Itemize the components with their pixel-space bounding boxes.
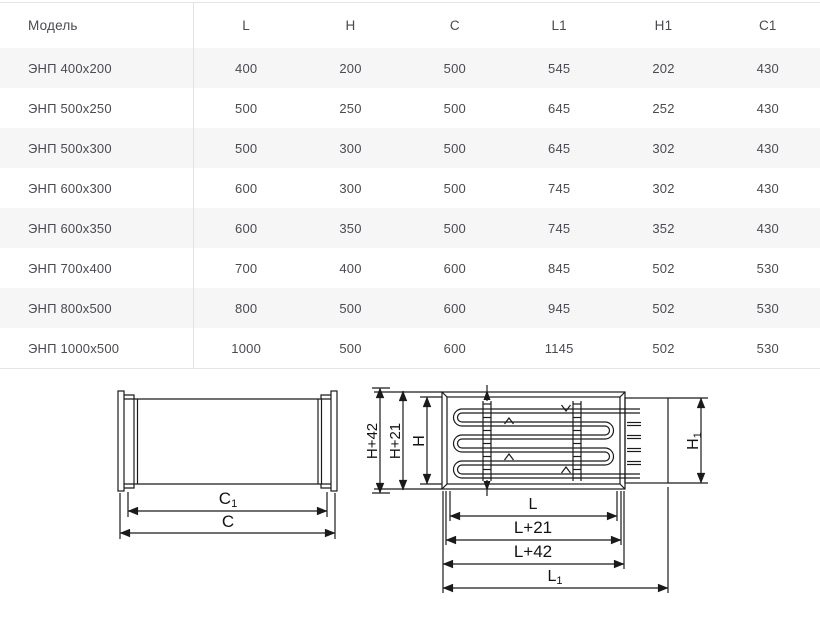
value-cell: 845 <box>507 248 611 288</box>
terminal-box <box>625 398 668 483</box>
value-cell: 500 <box>298 288 402 328</box>
value-cell: 430 <box>716 168 820 208</box>
value-cell: 600 <box>403 328 507 368</box>
dimension-label-h42: H+42 <box>364 423 381 459</box>
model-cell: ЭНП 600х350 <box>0 208 194 248</box>
column-header: H <box>298 3 402 48</box>
value-cell: 250 <box>298 88 402 128</box>
table-row: ЭНП 1000х50010005006001145502530 <box>0 328 820 368</box>
table-row: ЭНП 600х350600350500745352430 <box>0 208 820 248</box>
value-cell: 300 <box>298 128 402 168</box>
value-cell: 430 <box>716 208 820 248</box>
value-cell: 645 <box>507 128 611 168</box>
value-cell: 600 <box>194 208 298 248</box>
column-header: L1 <box>507 3 611 48</box>
heater-casing-inner <box>447 397 620 484</box>
value-cell: 430 <box>716 48 820 88</box>
value-cell: 350 <box>298 208 402 248</box>
table-body: ЭНП 400х200400200500545202430ЭНП 500х250… <box>0 48 820 368</box>
value-cell: 500 <box>194 128 298 168</box>
value-cell: 600 <box>194 168 298 208</box>
column-header: L <box>194 3 298 48</box>
dimension-label-c: C <box>222 512 234 531</box>
value-cell: 1145 <box>507 328 611 368</box>
value-cell: 202 <box>611 48 715 88</box>
value-cell: 600 <box>403 248 507 288</box>
value-cell: 200 <box>298 48 402 88</box>
dimension-label-h: H <box>411 435 428 447</box>
value-cell: 500 <box>403 128 507 168</box>
value-cell: 430 <box>716 88 820 128</box>
column-header: C1 <box>716 3 820 48</box>
value-cell: 600 <box>403 288 507 328</box>
value-cell: 352 <box>611 208 715 248</box>
model-cell: ЭНП 500х250 <box>0 88 194 128</box>
value-cell: 545 <box>507 48 611 88</box>
value-cell: 502 <box>611 248 715 288</box>
dimension-label-c1: C1 <box>219 489 237 510</box>
table-row: ЭНП 500х250500250500645252430 <box>0 88 820 128</box>
value-cell: 400 <box>298 248 402 288</box>
table-row: ЭНП 800х500800500600945502530 <box>0 288 820 328</box>
column-header: C <box>403 3 507 48</box>
table-row: ЭНП 500х300500300500645302430 <box>0 128 820 168</box>
dimension-label-l21: L+21 <box>514 518 552 537</box>
dimensions-table: МодельLHCL1H1C1 ЭНП 400х2004002005005452… <box>0 2 820 369</box>
value-cell: 500 <box>403 168 507 208</box>
value-cell: 502 <box>611 328 715 368</box>
value-cell: 500 <box>298 328 402 368</box>
value-cell: 530 <box>716 288 820 328</box>
dimension-label-l1: L1 <box>547 568 562 587</box>
value-cell: 945 <box>507 288 611 328</box>
value-cell: 800 <box>194 288 298 328</box>
dimension-label-h1: H1 <box>685 432 704 450</box>
model-cell: ЭНП 500х300 <box>0 128 194 168</box>
value-cell: 500 <box>194 88 298 128</box>
model-cell: ЭНП 600х300 <box>0 168 194 208</box>
value-cell: 700 <box>194 248 298 288</box>
side-view-diagram: C1 C <box>118 391 337 539</box>
value-cell: 530 <box>716 248 820 288</box>
value-cell: 302 <box>611 128 715 168</box>
model-cell: ЭНП 1000х500 <box>0 328 194 368</box>
column-header: H1 <box>611 3 715 48</box>
dimension-drawings: C1 C <box>0 369 820 623</box>
value-cell: 745 <box>507 208 611 248</box>
value-cell: 300 <box>298 168 402 208</box>
table-row: ЭНП 700х400700400600845502530 <box>0 248 820 288</box>
value-cell: 430 <box>716 128 820 168</box>
right-flange <box>331 391 337 491</box>
left-flange <box>118 391 124 491</box>
value-cell: 530 <box>716 328 820 368</box>
value-cell: 502 <box>611 288 715 328</box>
dimension-label-l42: L+42 <box>514 542 552 561</box>
heating-elements <box>454 409 642 478</box>
value-cell: 1000 <box>194 328 298 368</box>
value-cell: 252 <box>611 88 715 128</box>
value-cell: 500 <box>403 208 507 248</box>
value-cell: 745 <box>507 168 611 208</box>
dimension-label-l: L <box>529 496 538 513</box>
value-cell: 400 <box>194 48 298 88</box>
table-header-row: МодельLHCL1H1C1 <box>0 3 820 48</box>
value-cell: 500 <box>403 48 507 88</box>
table-row: ЭНП 600х300600300500745302430 <box>0 168 820 208</box>
column-header: Модель <box>0 3 194 48</box>
model-cell: ЭНП 700х400 <box>0 248 194 288</box>
value-cell: 302 <box>611 168 715 208</box>
dimension-label-h21: H+21 <box>387 423 404 459</box>
model-cell: ЭНП 400х200 <box>0 48 194 88</box>
value-cell: 500 <box>403 88 507 128</box>
table-row: ЭНП 400х200400200500545202430 <box>0 48 820 88</box>
model-cell: ЭНП 800х500 <box>0 288 194 328</box>
value-cell: 645 <box>507 88 611 128</box>
front-view-diagram: H+42 H+21 H H1 L L+21 L+42 L1 <box>364 385 708 593</box>
section-mark <box>484 385 491 496</box>
